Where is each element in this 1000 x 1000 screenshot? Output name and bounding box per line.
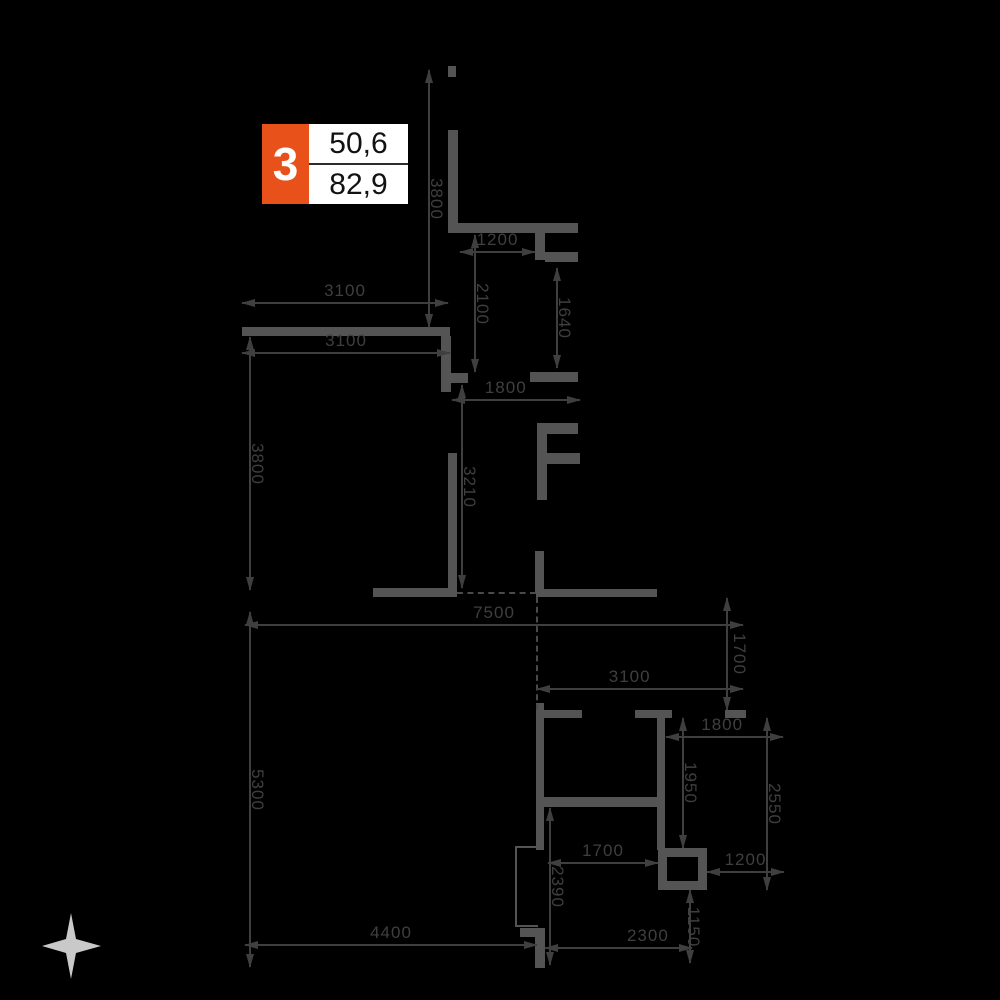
- wall-segment: [545, 252, 578, 262]
- dimension-3100-bottom: 3100: [537, 688, 743, 690]
- arrowhead: [546, 952, 554, 966]
- dimension-line: [452, 399, 580, 401]
- dimension-1640: 1640: [556, 268, 558, 368]
- arrowhead: [524, 941, 538, 949]
- opening-dashed-line: [457, 592, 536, 594]
- wall-segment: [635, 710, 672, 718]
- dimension-7500: 7500: [245, 624, 743, 626]
- dimension-1800-mid: 1800: [452, 399, 580, 401]
- arrowhead: [544, 944, 558, 952]
- dimension-1150: 1150: [689, 890, 691, 963]
- arrowhead: [665, 733, 679, 741]
- arrowhead: [706, 868, 720, 876]
- wall-segment: [535, 551, 544, 592]
- dimension-label: 1950: [680, 762, 700, 804]
- wall-segment: [537, 423, 547, 500]
- dimension-2300: 2300: [545, 947, 692, 949]
- arrowhead: [679, 835, 687, 849]
- arrowhead: [567, 396, 581, 404]
- dimension-3100-inner: 3100: [242, 352, 450, 354]
- dimension-line: [242, 352, 450, 354]
- arrowhead: [471, 359, 479, 373]
- dimension-3100-upper: 3100: [242, 302, 448, 304]
- arrowhead: [686, 889, 694, 903]
- dimension-line: [245, 944, 537, 946]
- balcony-outline: [515, 846, 517, 927]
- arrowhead: [645, 859, 659, 867]
- dimension-label: 1150: [683, 906, 703, 947]
- dimension-1200-top: 1200: [460, 251, 535, 253]
- dimension-label: 1700: [729, 633, 749, 675]
- arrowhead: [679, 717, 687, 731]
- projection-dashed-line: [536, 597, 538, 710]
- dimension-label: 2550: [764, 783, 784, 825]
- dimension-label: 3800: [247, 443, 267, 485]
- north-star-icon: [38, 908, 108, 988]
- dimension-line: [245, 624, 743, 626]
- dimension-line: [537, 688, 743, 690]
- wall-segment: [448, 453, 457, 597]
- wall-segment: [530, 372, 578, 382]
- wall-segment: [373, 588, 457, 597]
- arrowhead: [246, 336, 254, 350]
- arrowhead: [246, 611, 254, 625]
- wall-segment: [547, 453, 580, 464]
- dimension-label: 3100: [325, 331, 367, 351]
- dimension-line: [545, 947, 692, 949]
- wall-segment: [520, 928, 535, 937]
- arrowhead: [723, 697, 731, 711]
- arrowhead: [763, 877, 771, 891]
- arrowhead: [679, 944, 693, 952]
- dimension-3210: 3210: [461, 385, 463, 588]
- dimension-label: 4400: [370, 923, 412, 943]
- arrowhead: [425, 314, 433, 328]
- dimension-label: 2390: [547, 866, 567, 908]
- arrowhead: [730, 685, 744, 693]
- arrowhead: [435, 299, 449, 307]
- arrowhead: [246, 954, 254, 968]
- arrowhead: [771, 868, 785, 876]
- arrowhead: [459, 248, 473, 256]
- arrowhead: [546, 807, 554, 821]
- dimension-2100: 2100: [474, 235, 476, 372]
- arrowhead: [458, 575, 466, 589]
- apartment-number: 3: [262, 124, 309, 204]
- dimension-label: 1640: [554, 297, 574, 339]
- apartment-badge: 3 50,6 82,9: [262, 124, 408, 204]
- dimension-label: 1800: [701, 715, 743, 735]
- dimension-line: [242, 302, 448, 304]
- dimension-label: 2100: [472, 283, 492, 325]
- dimension-1200-bottom-right: 1200: [707, 871, 784, 873]
- dimension-label: 1200: [725, 850, 767, 870]
- dimension-label: 1800: [485, 378, 527, 398]
- floor-plan: 3800 1200 2100 1640 3100 3100 3800 1800: [0, 0, 1000, 1000]
- arrowhead: [471, 234, 479, 248]
- arrowhead: [522, 248, 536, 256]
- wall-segment: [448, 66, 456, 77]
- balcony-outline: [515, 846, 538, 848]
- wall-segment: [547, 423, 578, 434]
- dimension-label: 2300: [627, 926, 669, 946]
- area-value-top: 50,6: [309, 124, 408, 165]
- dimension-label: 3100: [609, 667, 651, 687]
- dimension-1700-bottom: 1700: [548, 862, 658, 864]
- arrowhead: [241, 299, 255, 307]
- shaft-wall: [658, 848, 707, 890]
- dimension-1950: 1950: [682, 718, 684, 848]
- wall-segment: [448, 130, 458, 233]
- arrowhead: [244, 941, 258, 949]
- wall-segment: [538, 710, 582, 718]
- arrowhead: [246, 577, 254, 591]
- wall-segment: [441, 336, 451, 392]
- arrowhead: [458, 384, 466, 398]
- dimension-label: 5300: [247, 769, 267, 811]
- dimension-label: 7500: [473, 603, 515, 623]
- arrowhead: [770, 733, 784, 741]
- dimension-line: [548, 862, 658, 864]
- dimension-label: 3210: [459, 466, 479, 508]
- dimension-label: 3800: [426, 178, 446, 220]
- dimension-5300: 5300: [249, 612, 251, 967]
- arrowhead: [437, 349, 451, 357]
- dimension-1700-right: 1700: [726, 598, 728, 710]
- arrowhead: [553, 267, 561, 281]
- arrowhead: [686, 950, 694, 964]
- arrowhead: [425, 69, 433, 83]
- wall-segment: [451, 373, 468, 383]
- dimension-3800-top: 3800: [428, 70, 430, 327]
- arrowhead: [553, 355, 561, 369]
- dimension-line: [726, 598, 728, 710]
- dimension-2390: 2390: [549, 808, 551, 965]
- wall-segment: [657, 710, 665, 850]
- arrowhead: [536, 685, 550, 693]
- balcony-outline: [515, 925, 538, 927]
- arrowhead: [241, 349, 255, 357]
- area-value-bottom: 82,9: [309, 165, 408, 204]
- arrowhead: [723, 597, 731, 611]
- arrowhead: [730, 621, 744, 629]
- wall-segment: [536, 703, 544, 850]
- wall-segment: [541, 797, 663, 807]
- arrowhead: [763, 717, 771, 731]
- dimension-label: 3100: [324, 281, 366, 301]
- wall-segment: [536, 589, 657, 597]
- dimension-label: 1700: [582, 841, 624, 861]
- dimension-3800-left: 3800: [249, 337, 251, 590]
- dimension-label: 1200: [477, 230, 519, 250]
- apartment-areas: 50,6 82,9: [309, 124, 408, 204]
- dimension-4400: 4400: [245, 944, 537, 946]
- wall-segment: [535, 233, 545, 260]
